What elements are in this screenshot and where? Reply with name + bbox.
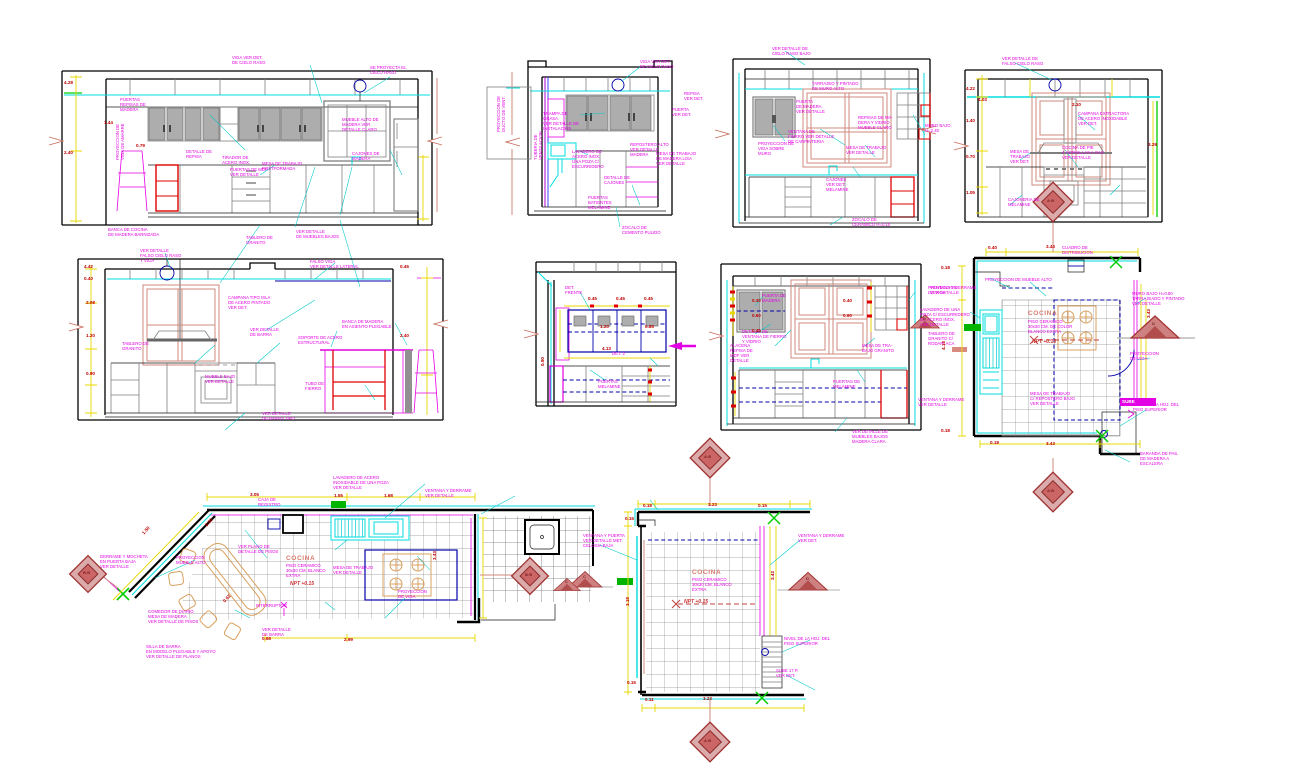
annotation-label: MESA DE TRABAJO DE MADERA LISA VER DETAL… (656, 152, 696, 167)
annotation-label: LAVADERO DE ACERO INOX. UNA POZA C/ ESCU… (572, 150, 604, 170)
annotation-label: VER DETALLE DE BARRA (250, 328, 279, 338)
dimension-label: 2.10 (1072, 102, 1081, 107)
dimension-label: 0.30 (752, 298, 761, 303)
annotation-label: TIRADOR DE ACERO INOX. (222, 156, 250, 166)
annotation-label: VENTANA Y DERRAME VER DETALLE (918, 398, 964, 408)
dimension-label: 3.18 (625, 597, 630, 606)
annotation-label: LAVADERO DE UNA POZA C/ ESCURRIDERO DE A… (920, 308, 970, 328)
cad-sheet: VIGA VER DET. DE CIELO RASOSE PROYECTA E… (0, 0, 1297, 772)
marker-letter: A·B (704, 739, 711, 744)
annotation-label: LAVADERO DE ACERO INOXIDABLE DE UNA POZA… (333, 476, 389, 491)
dimension-label: 0.18 (941, 428, 950, 433)
dimension-label: 0.45 (588, 296, 597, 301)
annotation-label: TABLERO DE GRANITO (122, 342, 149, 352)
dimension-label: 3.43 (770, 571, 775, 580)
dimension-label: 0.45 (616, 296, 625, 301)
annotation-label: ALACENA REPISA DE MDF VER DETALLE (730, 344, 753, 364)
annotation-label: SUBE 17 P. VER DET. (776, 669, 798, 679)
annotation-label: CAJONES VER DET. MELAMINE (826, 178, 848, 193)
annotation-label: VENTANA Y DERRAME VER DET. (798, 534, 844, 544)
annotation-label: SUBE (1122, 399, 1135, 404)
dimension-label: 0.45 (752, 328, 761, 333)
annotation-label: PUERTA DE MADERA (762, 294, 786, 304)
annotation-label: VENTANA Y DERRAME VER DETALLE (425, 489, 471, 499)
annotation-label: PROYECCION DE VIGA SOBRE MURO (758, 142, 794, 157)
dimension-label: 2.40 (64, 150, 73, 155)
annotation-label: VENTANA Y DERRAME VER DETALLE (930, 286, 976, 296)
annotation-label: CAJONES DE MADERA (352, 152, 379, 162)
annotation-label: MESA DE TRABAJO VER DETALLE (846, 146, 886, 156)
level-label: NPT +0.15 (290, 582, 314, 588)
marker-letter: C (583, 575, 586, 580)
annotation-label: SILLA DE BARRA EN MODELO PLEGABLE Y APOY… (146, 645, 216, 660)
annotation-label: PROYECCION DE VIGA (398, 590, 427, 600)
annotation-label: TUBO DE FIERRO (305, 382, 324, 392)
annotation-label: PUERTAS BATIENTES MELAMINE (588, 196, 612, 211)
annotation-label: DETALLE DE CAJONES (604, 176, 630, 186)
annotation-label: CUADRO DE DISTRIBUCION (1062, 246, 1093, 256)
dimension-label: 0.18 (643, 503, 652, 508)
annotation-label: VENTANA DE FIERRO VER DETALLE DE CARPINT… (788, 130, 834, 145)
annotation-label: VER PLANO DE DETALLE DE PISOS (238, 545, 278, 555)
marker-letter: C (565, 580, 568, 585)
annotation-label: DET. FRENTE (565, 286, 582, 296)
annotation-label: COMEDOR DE DIARIO MESA DE MADERA VER DET… (148, 610, 198, 625)
dimension-label: 0.15 (758, 503, 767, 508)
annotation-label: BANCA DE COCINA DE MADERA BARNIZADA (108, 228, 159, 238)
annotation-label: MURO BAJO H=0.80 TARRAJEADO Y PINTADO VE… (1132, 292, 1184, 307)
dimension-label: 0.45 (400, 264, 409, 269)
marker-letter: A·B (704, 455, 711, 460)
annotation-label: CAJONERIA DE MELAMINE (1008, 198, 1040, 208)
annotation-label: PISO CERAMICO 30x30 CM. BLANCO EXTRA (286, 564, 326, 579)
dimension-label: 0.90 (86, 371, 95, 376)
dimension-label: 1.55 (334, 493, 343, 498)
annotation-label: VER DETALLE DE CIELO RASO BAJO (772, 47, 811, 57)
annotation-label: FALSO VIGA VER DETALLE LATERAL (310, 260, 359, 270)
dimension-label: 3.43 (1146, 309, 1151, 318)
annotation-label: ZOCALO DE CEMENTO PULIDO (622, 226, 661, 236)
annotation-label: INTERRUPTOR (256, 604, 287, 609)
dimension-label: 4.03 (978, 97, 987, 102)
annotation-label: MESA DE TRABAJO C/ REPOSTERO BAJO VER DE… (1030, 392, 1075, 407)
annotation-label: SE PROYECTA EL CIELO RASO (370, 66, 406, 76)
dimension-label: 0.11 (645, 697, 654, 702)
plan-title: COCINA (692, 569, 721, 576)
dimension-label: 0.90 (540, 357, 545, 366)
annotation-label: CAMPANA TIPO ISLA DE ACERO PINTADO VER D… (228, 296, 270, 311)
dimension-label: 3.29 (1148, 142, 1157, 147)
dimension-label: 1.20 (600, 324, 609, 329)
dimension-label: 0.18 (941, 265, 950, 270)
marker-letter: B·B (83, 571, 90, 576)
plan-title: COCINA (1028, 310, 1057, 317)
annotation-label: VER DETALLE FALSO CIELO RASO Y VIGA (140, 249, 181, 264)
dimension-label: 0.79 (136, 143, 145, 148)
annotation-label: DET. 2 (612, 352, 625, 357)
dimension-label: 1.05 (966, 190, 975, 195)
dimension-label: 1.68 (384, 493, 393, 498)
annotation-label: PROYECCION DE VIGA (1130, 352, 1159, 362)
annotation-label: REPISA VER DET. (684, 92, 703, 102)
annotation-label: PUERTAS REPISAS DE MADERA (120, 98, 146, 113)
dimension-label: 4.13 (941, 341, 946, 350)
dimension-label: 4.22 (966, 86, 975, 91)
dimension-label: 0.40 (988, 245, 997, 250)
dimension-label: 0.68 (262, 636, 271, 641)
annotation-label: VER DETALLE DE FALSO CIELO RASO (1002, 57, 1043, 67)
annotation-label: MESA DE TRABAJO VER DET. (1010, 150, 1030, 165)
dimension-label: 1.20 (86, 333, 95, 338)
annotation-label: VER DETALLE DE MUEBLES BAJOS (296, 230, 339, 240)
dimension-label: 2.99 (344, 637, 353, 642)
annotation-label: TABLERO DE GRANITO (246, 236, 273, 246)
level-label: NPT +0.15 (1032, 340, 1056, 346)
annotation-label: TRAMPA DE GRASA VER DETALLE DE INSTALACI… (543, 112, 579, 132)
plan-title: COCINA (286, 555, 315, 562)
dimension-label: 0.15 (627, 680, 636, 685)
dimension-label: 0.70 (966, 154, 975, 159)
annotation-label: ZOCALO DE CERAMICO H=0.10 (852, 218, 890, 228)
annotation-label: DETALLE DE REPISA (186, 150, 212, 160)
dimension-label: 3.43 (432, 551, 437, 560)
annotation-label: PUERTAS DE MELAMINE (833, 380, 860, 390)
marker-letter: A·B (1047, 489, 1054, 494)
marker-letter: A·B (1047, 199, 1054, 204)
dimension-label: 2.40 (400, 333, 409, 338)
annotation-label: COCINA DE PIE 4 HORNILLAS A GAS VER DETA… (1062, 146, 1104, 161)
annotation-label: NIVEL DE LA HOJ. DEL PISO SUPERIOR (784, 637, 830, 647)
annotation-label: REPISAS DE MA- DERA Y VIDRIO MUEBLE CLAR… (858, 116, 893, 131)
annotation-label: PUERTAS MELAMINE (598, 380, 620, 390)
dimension-label: 0.45 (644, 296, 653, 301)
dimension-label: 2.08 (86, 300, 95, 305)
annotation-label: MESA DE TRA- BAJO GRANITO (862, 344, 894, 354)
annotation-label: VENTANA Y PUERTA VER DETALLE MET. CELOSI… (583, 534, 625, 549)
annotation-label: MESA DE TRABAJO POSTFORMADA (262, 162, 302, 172)
annotation-label: PROYECCION DE DUCTO DE VENT. (497, 96, 507, 132)
annotation-label: VIGA VER DET. DE CIELO RASO (232, 56, 265, 66)
dimension-label: 3.23 (703, 696, 712, 701)
annotation-label: VER DETALLE DE BARRA TIPO (262, 412, 295, 422)
dimension-label: 3.23 (708, 502, 717, 507)
annotation-label: PISO CERAMICO 30x30 CM. BLANCO EXTRA (692, 578, 732, 593)
dimension-label: 3.43 (1046, 441, 1055, 446)
dimension-label: 3.43 (1046, 244, 1055, 249)
dimension-label: 0.85 (645, 324, 654, 329)
annotation-label: MURO BAJO H=2.40 (925, 124, 951, 134)
annotation-label: VER DETALLE DE MUEBLES BAJOS MADERA CLAR… (852, 430, 888, 445)
marker-letter: D (1152, 322, 1155, 327)
level-label: NPT +0.15 (684, 600, 708, 606)
dimension-label: 0.15 (625, 516, 634, 521)
annotation-label: PUERTA VER DET. (672, 108, 691, 118)
dimension-label: 0.60 (843, 313, 852, 318)
annotation-label: CAJA DE REGISTRO (258, 498, 280, 508)
annotation-label: BARANDA DE PAS. DE MADERA A ESCALERA (1140, 452, 1178, 467)
annotation-label: PROYECCION MUEBLE ALTO (176, 556, 205, 566)
marker-letter: D (923, 317, 926, 322)
annotation-label: MESA DE TRABAJO VER DETALLE (333, 566, 373, 576)
annotation-label: NIVEL DE LA HOJ. DEL PISO SUPERIOR (1133, 403, 1179, 413)
dimension-label: 4.13 (602, 346, 611, 351)
annotation-label: PROYECCION DE MUEBLE ALTO (985, 278, 1052, 283)
dimension-label: 1.44 (104, 120, 113, 125)
annotation-label: MUEBLE BAJO VER DETALLE (205, 375, 235, 385)
dimension-label: 0.18 (990, 440, 999, 445)
annotation-label: SOPORTE DE ACERO ESTRUCTURAL (298, 336, 342, 346)
dimension-label: 0.60 (752, 313, 761, 318)
marker-letter: D (806, 577, 809, 582)
dimension-label: 3.05 (250, 492, 259, 497)
annotation-label: CAMPANA EXTRACTORA DE ACERO INOXIDABLE V… (1078, 112, 1129, 127)
annotation-label: PROYECCION DE VIGA DE AMARRE (116, 123, 126, 160)
dimension-label: 0.40 (84, 276, 93, 281)
annotation-label: TUBERIA DE VENTILACION (534, 131, 544, 160)
dimension-label: 4.42 (84, 264, 93, 269)
section-marker-triangle (1117, 316, 1195, 338)
annotation-label: VIGA VER DET. DE CIELO RASO (640, 60, 673, 70)
marker-letter: B·B (525, 573, 532, 578)
dimension-label: 1.40 (966, 118, 975, 123)
dimension-label: 4.28 (64, 80, 73, 85)
dimension-label: 0.40 (843, 298, 852, 303)
annotation-label: TARRAJEO Y PINTADO DE MURO ALTO (812, 82, 858, 92)
annotation-label: PUERTA DE MADERA VER DETALLE (796, 100, 825, 115)
annotation-label: PISO CERAMICO 30x30 CM. DE COLOR BLANCO … (1028, 320, 1072, 335)
annotation-label: MUEBLE ALTO DE MADERA VER DETALLE CLARO (342, 118, 379, 133)
annotation-label: DERRAME Y MOCHETA EN PUERTA BAJA VER DET… (100, 555, 148, 570)
annotation-label: BANCA DE MADERA EN ASIENTO PLEGABLE (342, 320, 391, 330)
